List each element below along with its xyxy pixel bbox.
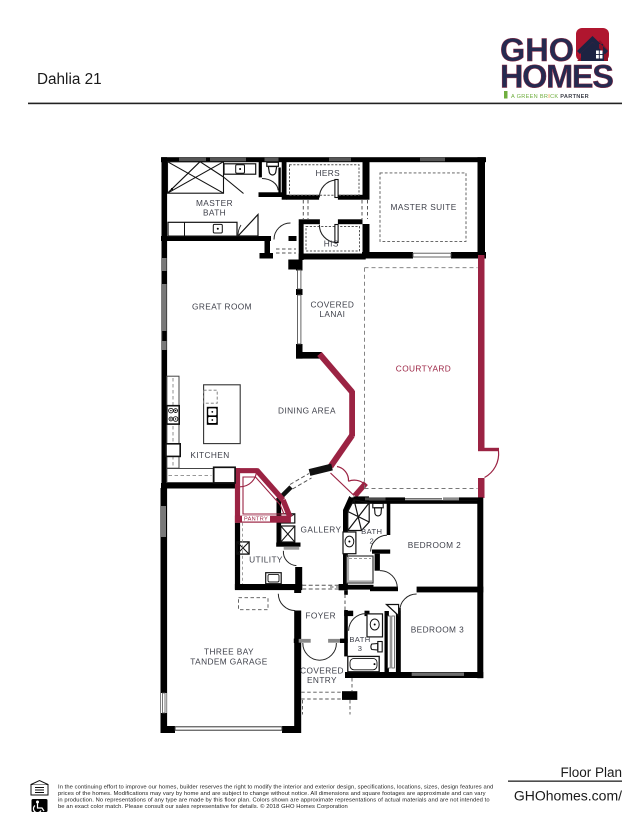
svg-text:LANAI: LANAI — [319, 309, 345, 319]
svg-text:COVERED: COVERED — [300, 666, 344, 676]
svg-text:2: 2 — [369, 537, 374, 546]
svg-text:BATH: BATH — [361, 527, 382, 536]
svg-text:BEDROOM 2: BEDROOM 2 — [408, 540, 461, 550]
svg-text:MASTER: MASTER — [196, 198, 233, 208]
svg-text:Dahlia 21: Dahlia 21 — [37, 71, 102, 88]
svg-text:DINING AREA: DINING AREA — [278, 406, 336, 416]
svg-text:in production. No representati: in production. No representations of any… — [58, 798, 490, 804]
svg-text:A GREEN BRICK PARTNER: A GREEN BRICK PARTNER — [511, 94, 589, 100]
svg-text:Floor Plan: Floor Plan — [560, 765, 622, 780]
svg-text:BEDROOM 3: BEDROOM 3 — [411, 625, 464, 635]
svg-text:GREAT ROOM: GREAT ROOM — [192, 302, 252, 312]
svg-text:3: 3 — [358, 644, 363, 653]
svg-text:UTILITY: UTILITY — [249, 555, 283, 565]
svg-text:THREE BAY: THREE BAY — [204, 647, 254, 657]
svg-text:BATH: BATH — [349, 635, 370, 644]
svg-text:BATH: BATH — [203, 208, 226, 218]
svg-text:COVERED: COVERED — [310, 300, 354, 310]
svg-text:KITCHEN: KITCHEN — [190, 450, 229, 460]
svg-text:ENTRY: ENTRY — [307, 675, 337, 685]
svg-text:GALLERY: GALLERY — [301, 525, 342, 535]
svg-text:HIS: HIS — [324, 238, 339, 248]
svg-text:HOMES: HOMES — [500, 59, 613, 95]
svg-text:prices of the homes. Modificat: prices of the homes. Modifications may v… — [58, 791, 486, 797]
svg-text:HERS: HERS — [315, 168, 340, 178]
svg-text:TANDEM GARAGE: TANDEM GARAGE — [190, 657, 267, 667]
svg-text:PANTRY: PANTRY — [244, 517, 268, 523]
svg-text:be an exact color match. Pleas: be an exact color match. Please consult … — [58, 803, 348, 810]
svg-text:In the continuing effort to im: In the continuing effort to improve our … — [58, 785, 493, 791]
svg-text:MASTER SUITE: MASTER SUITE — [391, 202, 457, 212]
svg-text:FOYER: FOYER — [305, 611, 336, 621]
svg-text:COURTYARD: COURTYARD — [396, 364, 451, 374]
svg-text:GHOhomes.com/: GHOhomes.com/ — [514, 788, 622, 804]
